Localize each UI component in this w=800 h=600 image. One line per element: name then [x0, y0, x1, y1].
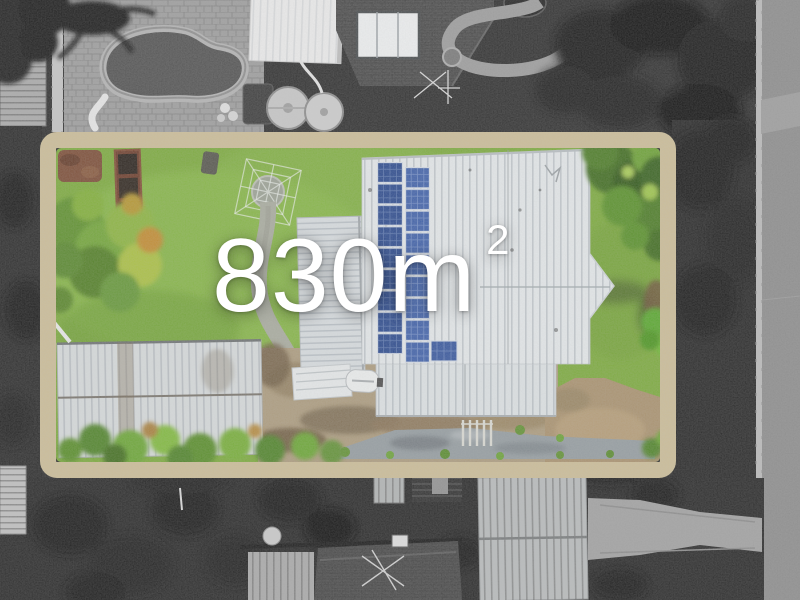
area-exponent: 2	[486, 219, 510, 261]
aerial-photo-container: 830m2	[0, 0, 800, 600]
area-value: 830m	[212, 218, 476, 334]
area-label: 830m2	[212, 224, 511, 328]
